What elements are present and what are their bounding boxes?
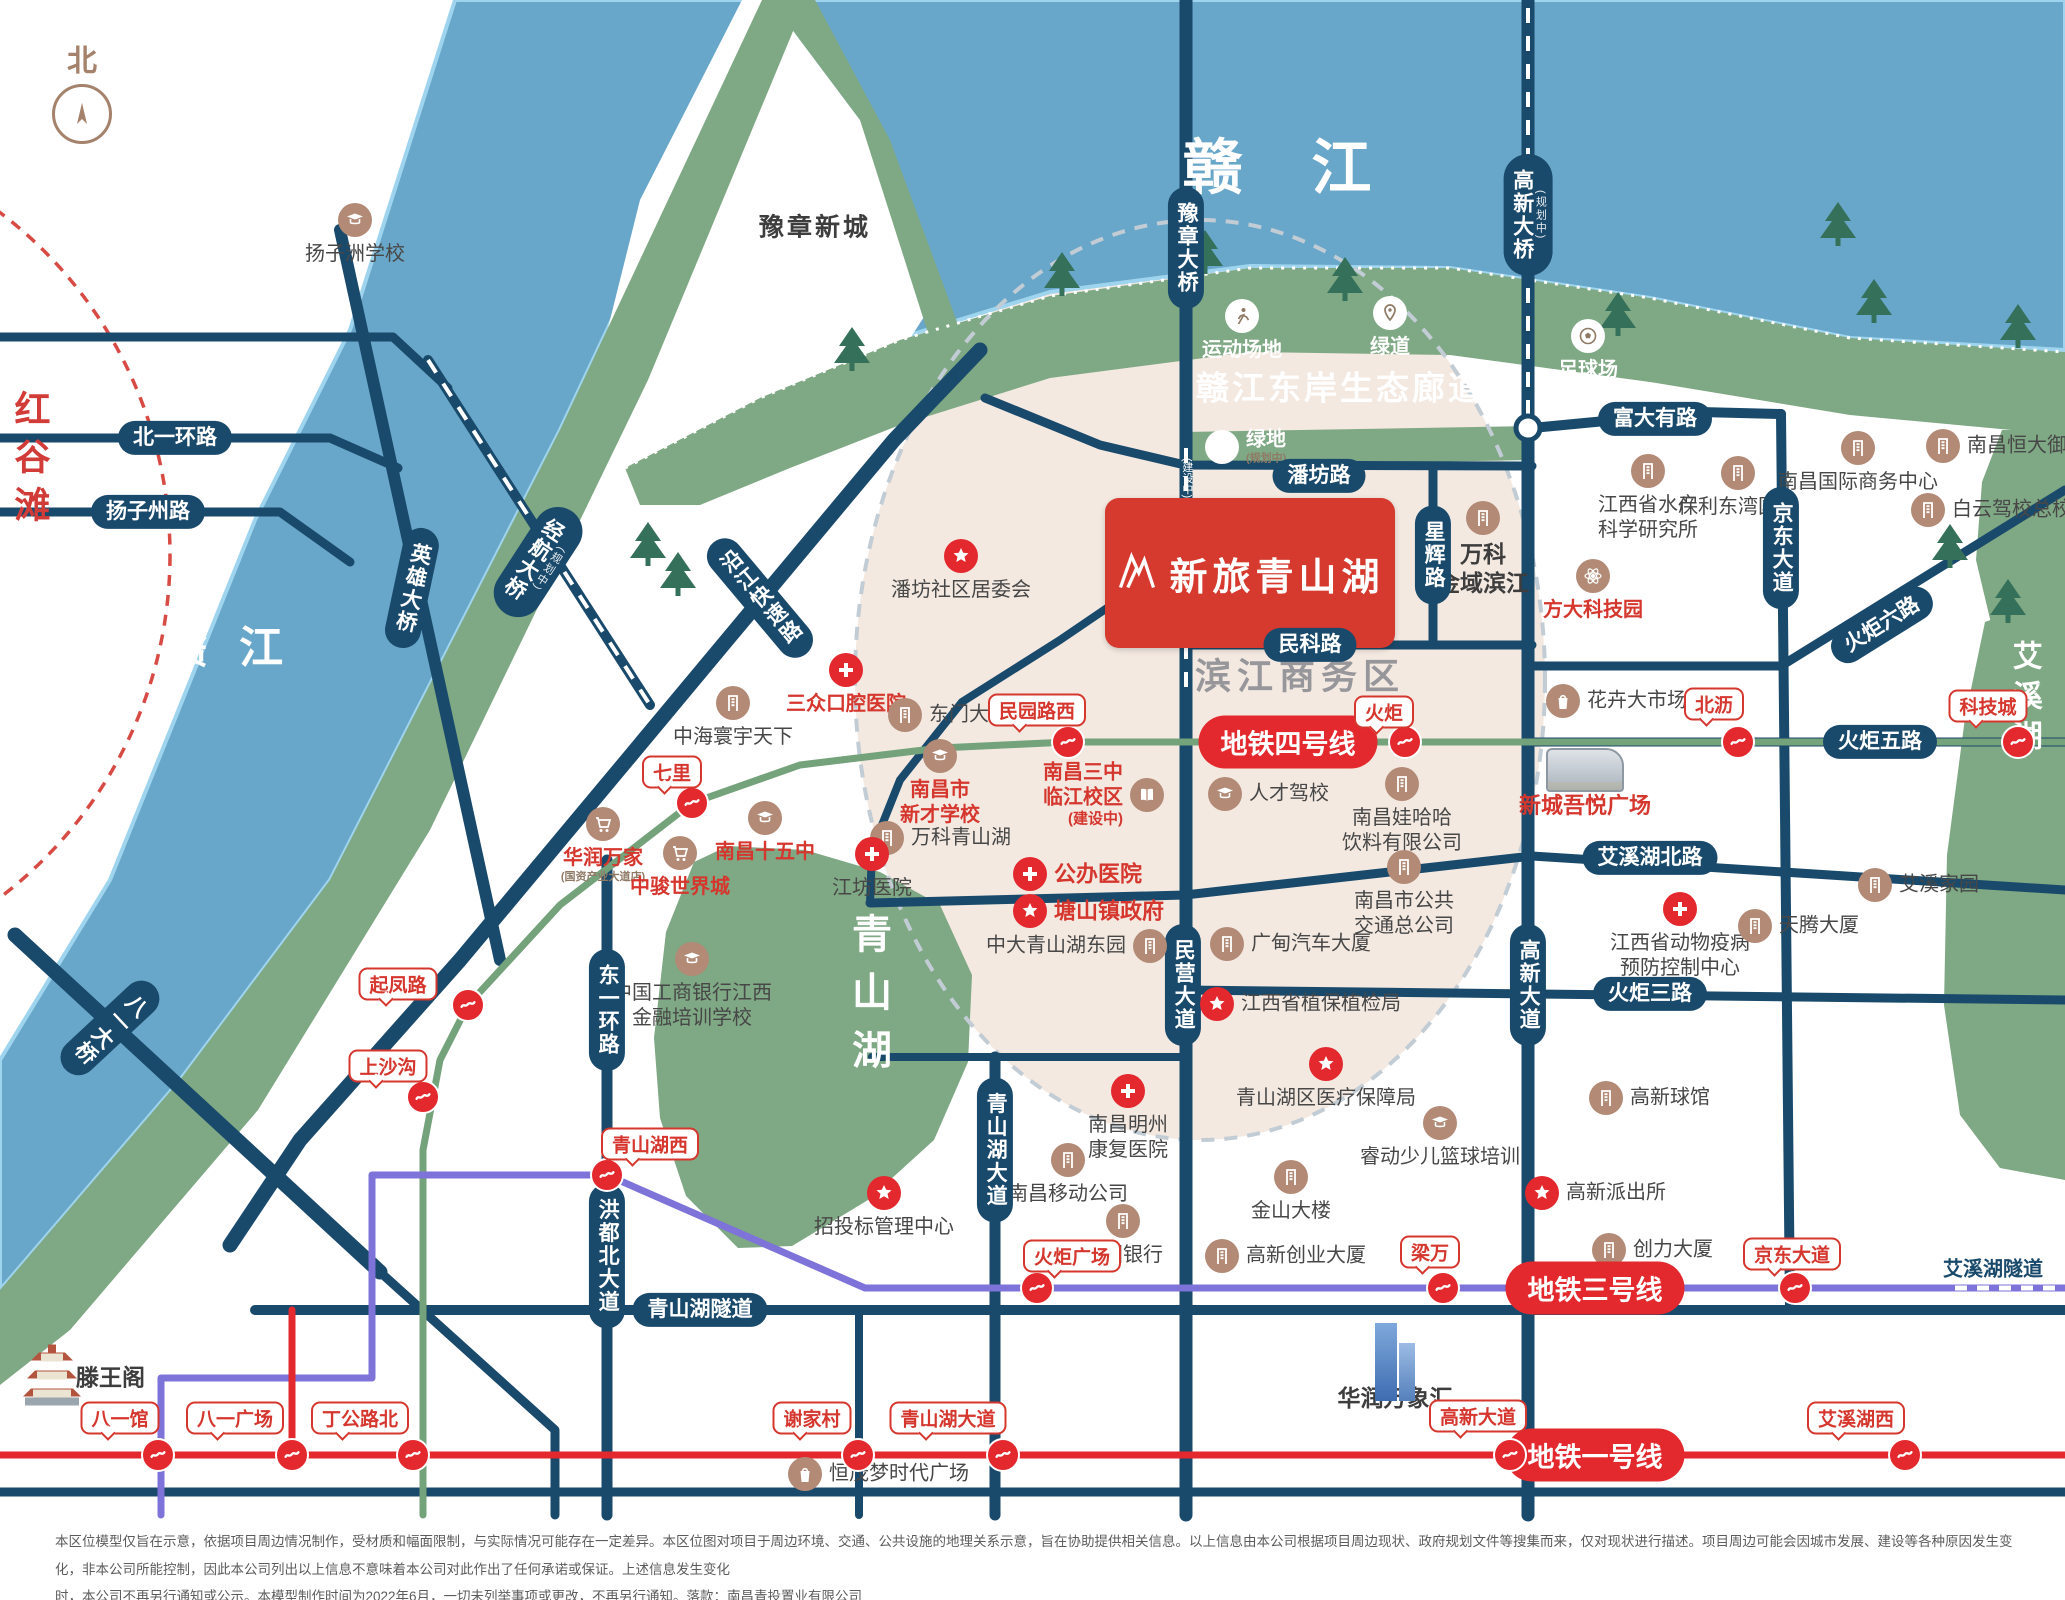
building-icon xyxy=(1274,1160,1308,1194)
building-icon xyxy=(1911,493,1945,527)
metro-station-4 xyxy=(1388,725,1422,759)
metro-station-12 xyxy=(275,1438,309,1472)
metro-station-8 xyxy=(1020,1271,1054,1305)
building-icon xyxy=(1466,501,1500,535)
station-callout-0: 七里 xyxy=(642,756,702,789)
map-items: 北一环路扬子州路经航大桥(规划中)英雄大桥沿江快速路八一大桥豫章大桥高新大桥(规… xyxy=(0,0,2065,1600)
poi-label-16: 高新球馆 xyxy=(1630,1086,1710,1111)
metro-station-1 xyxy=(451,988,485,1022)
metro-station-2 xyxy=(406,1080,440,1114)
poi-label-43: 招投标管理中心 xyxy=(814,1215,954,1240)
cart-icon xyxy=(586,807,620,841)
road-pill-11: 民科路 xyxy=(1264,628,1357,662)
star-icon xyxy=(1525,1176,1559,1210)
runner-icon xyxy=(1225,299,1259,333)
building-icon xyxy=(1051,1143,1085,1177)
station-callout-10: 京东大道 xyxy=(1743,1238,1841,1271)
greenway-pin-icon xyxy=(1373,296,1407,330)
map-label-10: 艾溪湖隧道 xyxy=(1943,1258,2043,1283)
station-callout-9: 梁万 xyxy=(1400,1236,1460,1269)
road-pill-12: 京东大道 xyxy=(1763,487,1799,609)
metro-station-14 xyxy=(841,1438,875,1472)
school-icon xyxy=(923,739,957,773)
metro-station-7 xyxy=(590,1158,624,1192)
road-pill-5: 八一大桥 xyxy=(53,973,167,1083)
metro-line-pill-2: 地铁一号线 xyxy=(1506,1429,1685,1482)
poi-label-18: 天腾大厦 xyxy=(1779,914,1859,939)
poi-label-30: 花卉大市场 xyxy=(1587,689,1687,714)
poi-label-14: 金山大楼 xyxy=(1251,1199,1331,1224)
school-icon xyxy=(748,801,782,835)
poi-label-8: 南昌恒大御澜府 xyxy=(1967,434,2065,459)
poi-label-13: 中大青山湖东园 xyxy=(986,934,1126,959)
mall-icon xyxy=(1546,748,1624,792)
poi-label-9: 白云驾校总校 xyxy=(1952,498,2065,523)
map-label-4: 青山湖 xyxy=(843,913,893,1087)
map-label-8: (建设中) xyxy=(1489,366,1505,414)
poi-label-22: 南昌十五中 xyxy=(715,840,815,865)
poi-label-27: 南昌三中临江校区(建设中) xyxy=(1043,761,1123,830)
poi-label-37: 江西省动物疫病预防控制中心 xyxy=(1610,931,1750,981)
road-pill-7: 高新大桥(规划中) xyxy=(1504,154,1553,276)
star-icon xyxy=(867,1176,901,1210)
road-pill-0: 北一环路 xyxy=(118,421,232,455)
station-callout-14: 谢家村 xyxy=(772,1402,851,1435)
station-callout-5: 北沥 xyxy=(1684,688,1744,721)
building-icon xyxy=(1387,850,1421,884)
station-callout-13: 丁公路北 xyxy=(311,1402,409,1435)
road-pill-13: 火炬六路 xyxy=(1825,580,1940,669)
map-label-9: (建设中) xyxy=(1179,458,1193,498)
star-icon xyxy=(1309,1047,1343,1081)
road-pill-22: 青山湖隧道 xyxy=(633,1293,768,1327)
school-icon xyxy=(338,203,372,237)
building-icon xyxy=(1926,429,1960,463)
cart-icon xyxy=(663,836,697,870)
star-icon xyxy=(944,539,978,573)
metro-station-17 xyxy=(1888,1438,1922,1472)
location-map: 新旅青山湖 北 北一环路扬子州路经航大桥(规划中)英雄大桥沿江快速路八一大桥豫章… xyxy=(0,0,2065,1600)
poi-label-35: 公办医院 xyxy=(1054,860,1142,888)
road-pill-20: 青山湖大道 xyxy=(977,1078,1013,1223)
station-callout-12: 八一广场 xyxy=(186,1402,284,1435)
poi-label-12: 广甸汽车大厦 xyxy=(1251,932,1371,957)
road-pill-18: 高新大道 xyxy=(1510,924,1546,1046)
building-icon xyxy=(1858,868,1892,902)
poi-label-2: 中海寰宇天下 xyxy=(673,725,793,750)
road-pill-21: 洪都北大道 xyxy=(589,1184,625,1329)
poi-label-32: 方大科技园 xyxy=(1543,598,1643,623)
metro-station-0 xyxy=(675,786,709,820)
station-callout-17: 艾溪湖西 xyxy=(1807,1402,1905,1435)
poi-label-10: 南昌娃哈哈饮料有限公司 xyxy=(1342,806,1462,856)
soccer-icon xyxy=(1571,319,1605,353)
poi-label-42: 高新派出所 xyxy=(1566,1181,1666,1206)
poi-label-38: 潘坊社区居委会 xyxy=(891,578,1031,603)
poi-label-50: 滕王阁 xyxy=(76,1364,145,1393)
building-icon xyxy=(1631,454,1665,488)
map-label-3: 红谷滩 xyxy=(8,390,53,534)
hospital-cross-icon xyxy=(855,837,889,871)
map-label-7: 赣江东岸生态廊道 xyxy=(1196,367,1484,408)
bag-icon xyxy=(788,1457,822,1491)
building-icon xyxy=(1721,456,1755,490)
metro-station-10 xyxy=(1778,1271,1812,1305)
building-icon xyxy=(1841,431,1875,465)
metro-station-16 xyxy=(1493,1438,1527,1472)
building-icon xyxy=(888,698,922,732)
station-callout-3: 民园路西 xyxy=(988,694,1086,727)
poi-label-46: 足球场 xyxy=(1558,358,1618,383)
station-callout-1: 起凤路 xyxy=(358,968,437,1001)
poi-label-34: 江坊医院 xyxy=(832,876,912,901)
poi-label-3: 万科青山湖 xyxy=(911,826,1011,851)
poi-label-20: 南昌移动公司 xyxy=(1008,1182,1128,1207)
school-icon xyxy=(675,942,709,976)
metro-station-3 xyxy=(1051,725,1085,759)
disclaimer: 本区位模型仅旨在示意，依据项目周边情况制作，受材质和幅面限制，与实际情况可能存在… xyxy=(55,1528,2025,1600)
building-icon xyxy=(1133,929,1167,963)
metro-station-9 xyxy=(1426,1271,1460,1305)
poi-label-7: 南昌国际商务中心 xyxy=(1778,470,1938,495)
hospital-cross-icon xyxy=(829,653,863,687)
poi-label-23: 南昌市新才学校 xyxy=(900,778,980,828)
road-pill-15: 艾溪湖北路 xyxy=(1583,841,1718,875)
station-callout-6: 科技城 xyxy=(1948,690,2027,723)
poi-label-26: 睿动少儿篮球培训 xyxy=(1360,1145,1520,1170)
hospital-cross-icon xyxy=(1013,857,1047,891)
road-pill-1: 扬子州路 xyxy=(91,495,205,529)
road-pill-14: 火炬五路 xyxy=(1823,725,1937,759)
poi-label-48: 新城吾悦广场 xyxy=(1519,792,1651,820)
station-callout-16: 高新大道 xyxy=(1429,1400,1527,1433)
map-label-0: 赣 江 xyxy=(1183,131,1398,206)
poi-label-39: 塘山镇政府 xyxy=(1054,897,1164,925)
poi-label-17: 创力大厦 xyxy=(1633,1238,1713,1263)
hospital-cross-icon xyxy=(1663,892,1697,926)
school-icon xyxy=(1208,777,1242,811)
station-callout-11: 八一馆 xyxy=(80,1402,159,1435)
poi-label-41: 青山湖区医疗保障局 xyxy=(1236,1086,1416,1111)
building-icon xyxy=(1738,909,1772,943)
road-pill-9: 潘坊路 xyxy=(1273,459,1366,493)
map-label-2: 豫章新城 xyxy=(759,212,871,243)
road-pill-3: 英雄大桥 xyxy=(382,525,443,652)
building-icon xyxy=(1385,767,1419,801)
metro-station-13 xyxy=(396,1438,430,1472)
building-icon xyxy=(1106,1204,1140,1238)
metro-station-15 xyxy=(986,1438,1020,1472)
station-callout-7: 青山湖西 xyxy=(601,1128,699,1161)
poi-label-40: 江西省植保植检局 xyxy=(1241,992,1401,1017)
road-pill-10: 星辉路 xyxy=(1415,506,1451,605)
metro-station-6 xyxy=(2001,725,2035,759)
tower-icon xyxy=(1375,1323,1415,1401)
building-icon xyxy=(1205,1239,1239,1273)
pagoda-icon xyxy=(19,1341,85,1416)
metro-line-pill-0: 地铁四号线 xyxy=(1199,716,1378,769)
poi-label-6: 江西省水产科学研究所 xyxy=(1598,493,1698,543)
station-callout-2: 上沙沟 xyxy=(348,1050,427,1083)
road-pill-19: 东一环路 xyxy=(589,949,625,1071)
poi-label-44: 运动场地 xyxy=(1202,338,1282,363)
metro-station-11 xyxy=(141,1438,175,1472)
poi-label-0: 扬子洲学校 xyxy=(305,242,405,267)
station-callout-4: 火炬 xyxy=(1354,696,1414,729)
map-label-1: 赣 江 xyxy=(163,621,293,676)
poi-label-36: 南昌明州康复医院 xyxy=(1088,1113,1168,1163)
road-pill-2: 经航大桥(规划中) xyxy=(484,498,591,627)
book-icon xyxy=(1130,778,1164,812)
poi-label-24: 人才驾校 xyxy=(1249,782,1329,807)
poi-label-25: 中国工商银行江西金融培训学校 xyxy=(612,981,772,1031)
star-icon xyxy=(1013,894,1047,928)
metro-station-5 xyxy=(1721,725,1755,759)
disclaimer-line-2: 时，本公司不再另行通知或公示。本模型制作时间为2022年6月，一切未列举事项或更… xyxy=(55,1583,2025,1600)
road-pill-16: 火炬三路 xyxy=(1593,977,1707,1011)
station-callout-15: 青山湖大道 xyxy=(889,1402,1006,1435)
bag-icon xyxy=(1546,684,1580,718)
road-pill-8: 富大有路 xyxy=(1598,402,1712,436)
poi-label-45: 绿道 xyxy=(1370,335,1410,360)
building-icon xyxy=(1589,1081,1623,1115)
poi-label-19: 艾溪家园 xyxy=(1899,873,1979,898)
metro-line-pill-1: 地铁三号线 xyxy=(1506,1262,1685,1315)
school-icon xyxy=(1423,1106,1457,1140)
building-icon xyxy=(1210,927,1244,961)
building-icon xyxy=(716,686,750,720)
station-callout-8: 火炬广场 xyxy=(1023,1240,1121,1273)
road-pill-6: 豫章大桥 xyxy=(1168,187,1204,309)
road-pill-4: 沿江快速路 xyxy=(700,531,821,665)
atom-icon xyxy=(1576,559,1610,593)
star-icon xyxy=(1200,987,1234,1021)
disclaimer-line-1: 本区位模型仅旨在示意，依据项目周边情况制作，受材质和幅面限制，与实际情况可能存在… xyxy=(55,1528,2025,1583)
road-pill-17: 民营大道 xyxy=(1165,924,1201,1046)
hospital-cross-icon xyxy=(1111,1074,1145,1108)
greenland-tree-icon xyxy=(1205,430,1239,464)
poi-label-29: 中骏世界城 xyxy=(630,875,730,900)
poi-label-15: 高新创业大厦 xyxy=(1246,1244,1366,1269)
